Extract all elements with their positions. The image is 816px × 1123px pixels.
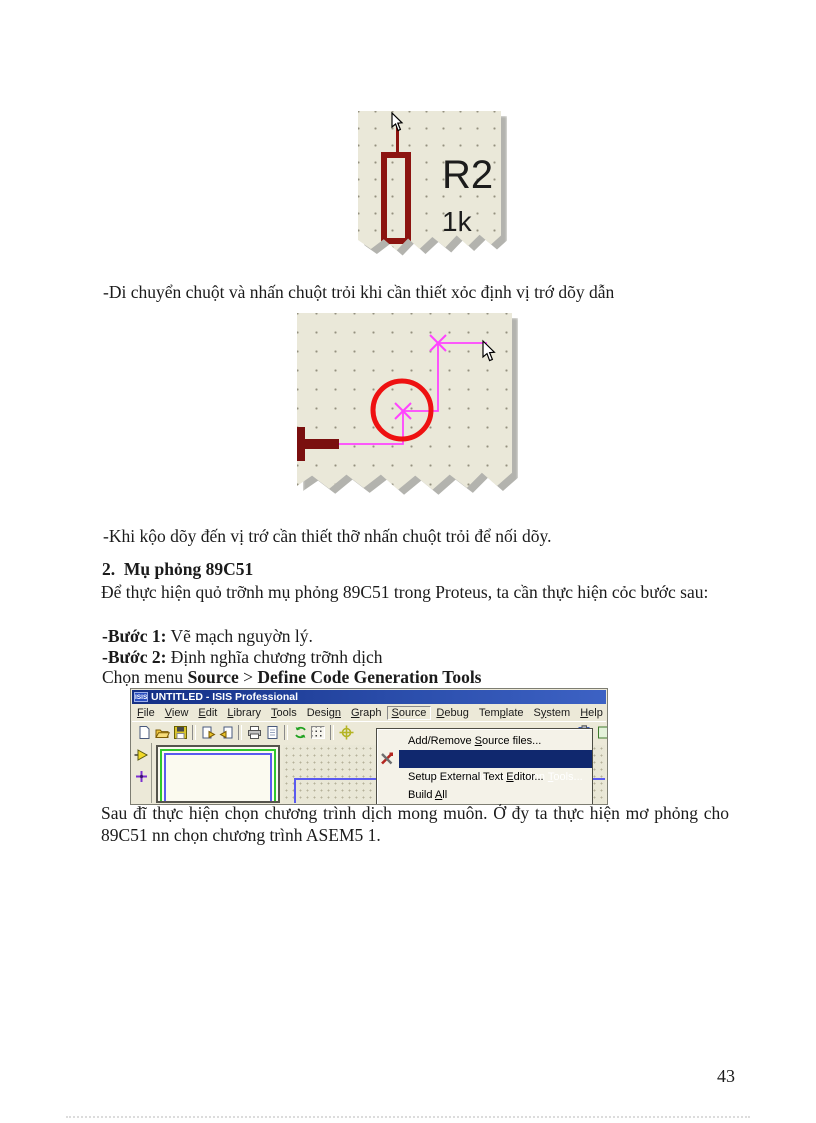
step-1-line: -Bước 1: Vẽ mạch nguyờn lý. — [102, 626, 313, 647]
menubar-item-template[interactable]: Template — [474, 706, 529, 720]
closing-paragraph: Sau đĩ thực hiện chọn chương trình dịch … — [101, 802, 729, 846]
figure-resistor: R2 1k — [358, 111, 501, 261]
section-heading: 2. Mụ phỏng 89C51 — [102, 559, 253, 580]
toolbar-separator — [284, 725, 288, 740]
mouse-cursor-icon — [389, 112, 404, 133]
menubar-item-file[interactable]: File — [132, 706, 160, 720]
sheet-outline-blue — [164, 753, 272, 803]
wire-terminal — [297, 427, 339, 461]
export-section-icon[interactable] — [217, 724, 235, 741]
copy-icon[interactable] — [595, 724, 608, 741]
print-icon[interactable] — [245, 724, 263, 741]
menu-path-source: Source — [188, 667, 239, 687]
footer-divider — [66, 1116, 750, 1118]
menubar: File View Edit Library Tools Design Grap… — [132, 704, 606, 721]
document-icon[interactable] — [263, 724, 281, 741]
step-2-label: -Bước 2: — [102, 647, 166, 667]
junction-plus-icon[interactable] — [135, 770, 148, 783]
menubar-item-system[interactable]: System — [529, 706, 576, 720]
resistor-symbol — [381, 152, 411, 244]
overview-panel[interactable] — [156, 745, 280, 803]
figure-wire-routing — [297, 313, 512, 501]
source-menu-popup: Add/Remove Source files... Define Code G… — [376, 728, 593, 805]
mode-toolbar — [132, 743, 152, 803]
resistor-ref-label: R2 — [442, 155, 493, 195]
menu-path-item: Define Code Generation Tools — [257, 667, 481, 687]
wire-path — [339, 343, 487, 444]
menu-item-build-all[interactable]: Build All — [377, 786, 592, 804]
menubar-item-help[interactable]: Help — [575, 706, 608, 720]
sheet-border-line — [294, 778, 296, 803]
menubar-item-tools[interactable]: Tools — [266, 706, 302, 720]
step-1-text: Vẽ mạch nguyờn lý. — [166, 626, 312, 646]
instruction-drag-wire: -Khi kộo dõy đến vị trớ cần thiết thỡ nh… — [103, 526, 551, 547]
menubar-item-graph[interactable]: Graph — [346, 706, 387, 720]
origin-icon[interactable] — [337, 724, 355, 741]
menu-item-define-code-generation-tools[interactable]: Define Code Generation Tools... — [399, 750, 592, 768]
menu-instruction-line: Chọn menu Source > Define Code Generatio… — [102, 667, 482, 688]
step-2-text: Định nghĩa chương trỡnh dịch — [166, 647, 382, 667]
menu-item-add-remove-source-files[interactable]: Add/Remove Source files... — [377, 732, 592, 750]
menubar-item-library[interactable]: Library — [222, 706, 266, 720]
toolbar-separator — [192, 725, 196, 740]
step-2-line: -Bước 2: Định nghĩa chương trỡnh dịch — [102, 647, 383, 668]
menubar-item-design[interactable]: Design — [302, 706, 346, 720]
resistor-value-label: 1k — [442, 208, 472, 236]
menu-item-setup-external-text-editor[interactable]: Setup External Text Editor... — [377, 768, 592, 786]
intro-paragraph: Để thực hiện quỏ trỡnh mụ phỏng 89C51 tr… — [101, 581, 731, 603]
menubar-item-view[interactable]: View — [160, 706, 194, 720]
instruction-move-mouse: -Di chuyển chuột và nhấn chuột trỏi khi … — [103, 282, 614, 303]
refresh-icon[interactable] — [291, 724, 309, 741]
new-file-icon[interactable] — [135, 724, 153, 741]
isis-logo-icon: ISIS — [134, 692, 148, 702]
grid-icon[interactable] — [309, 724, 327, 741]
selection-arrow-icon[interactable] — [134, 749, 149, 761]
mouse-cursor-icon — [483, 341, 494, 361]
toolbar-separator — [238, 725, 242, 740]
document-page: { "page": { "number": "43" }, "fig_resis… — [0, 0, 816, 1123]
menubar-item-edit[interactable]: Edit — [193, 706, 222, 720]
open-folder-icon[interactable] — [153, 724, 171, 741]
step-1-label: -Bước 1: — [102, 626, 166, 646]
save-icon[interactable] — [171, 724, 189, 741]
window-titlebar[interactable]: ISIS UNTITLED - ISIS Professional — [132, 690, 606, 704]
schematic-paper — [297, 313, 512, 501]
menubar-item-debug[interactable]: Debug — [431, 706, 473, 720]
menubar-item-source[interactable]: Source — [387, 706, 432, 720]
isis-window: ISIS UNTITLED - ISIS Professional File V… — [130, 688, 608, 805]
page-number: 43 — [717, 1066, 735, 1087]
toolbar-separator — [330, 725, 334, 740]
import-section-icon[interactable] — [199, 724, 217, 741]
window-title: UNTITLED - ISIS Professional — [151, 690, 298, 704]
